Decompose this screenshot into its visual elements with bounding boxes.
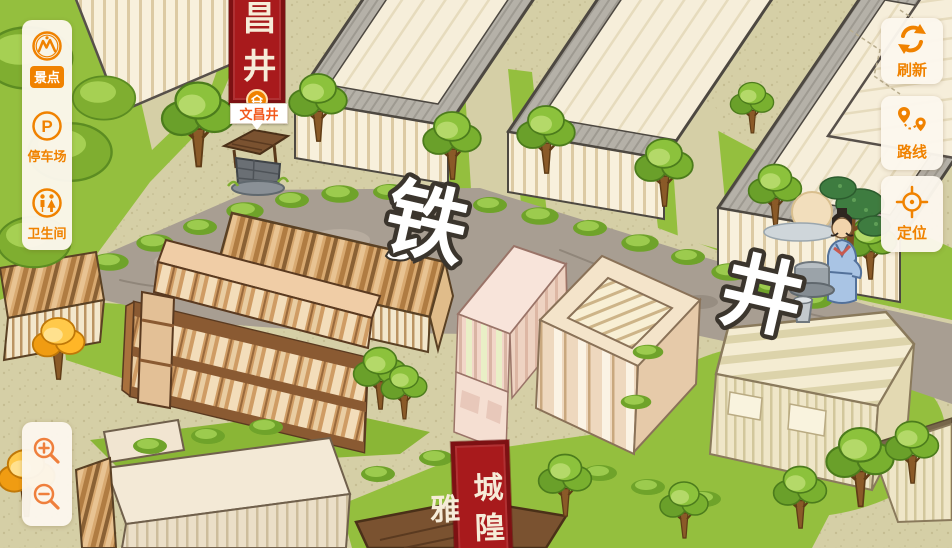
magnifier-minus-icon	[31, 481, 63, 513]
sidebar-item-scenic[interactable]: 景点	[30, 29, 64, 88]
zoom-out-button[interactable]	[31, 481, 63, 513]
sidebar-item-label: 卫生间	[27, 223, 66, 242]
locate-button[interactable]: 定位	[881, 176, 943, 252]
parking-icon: P	[30, 109, 64, 143]
crosshair-icon	[895, 185, 929, 219]
magnifier-plus-icon	[31, 435, 63, 467]
route-button[interactable]: 路线	[881, 96, 943, 170]
banner-bottom: 城隍雅	[451, 440, 514, 548]
sidebar-item-parking[interactable]: P 停车场	[27, 109, 66, 165]
route-pins-icon	[895, 104, 929, 138]
locate-label: 定位	[897, 222, 927, 243]
zoom-in-button[interactable]	[31, 435, 63, 467]
refresh-arrows-icon	[895, 22, 929, 56]
route-label: 路线	[897, 141, 927, 162]
refresh-button[interactable]: 刷新	[881, 18, 943, 84]
poi-marker-pointer	[250, 121, 264, 137]
svg-text:P: P	[41, 117, 52, 136]
zoom-controls-panel	[22, 422, 72, 526]
sidebar-item-restroom[interactable]: 卫生间	[27, 186, 66, 242]
scenic-spot-icon	[30, 29, 64, 63]
restroom-icon	[30, 186, 64, 220]
sidebar-item-label: 景点	[30, 66, 64, 88]
sidebar-panel: 景点 P 停车场 卫生间	[22, 20, 72, 250]
sidebar-item-label: 停车场	[27, 146, 66, 165]
refresh-label: 刷新	[897, 59, 927, 80]
scenic-map-app: 铁 井 文昌井 城隍雅 文昌井 景点 P 停车场	[0, 0, 952, 548]
